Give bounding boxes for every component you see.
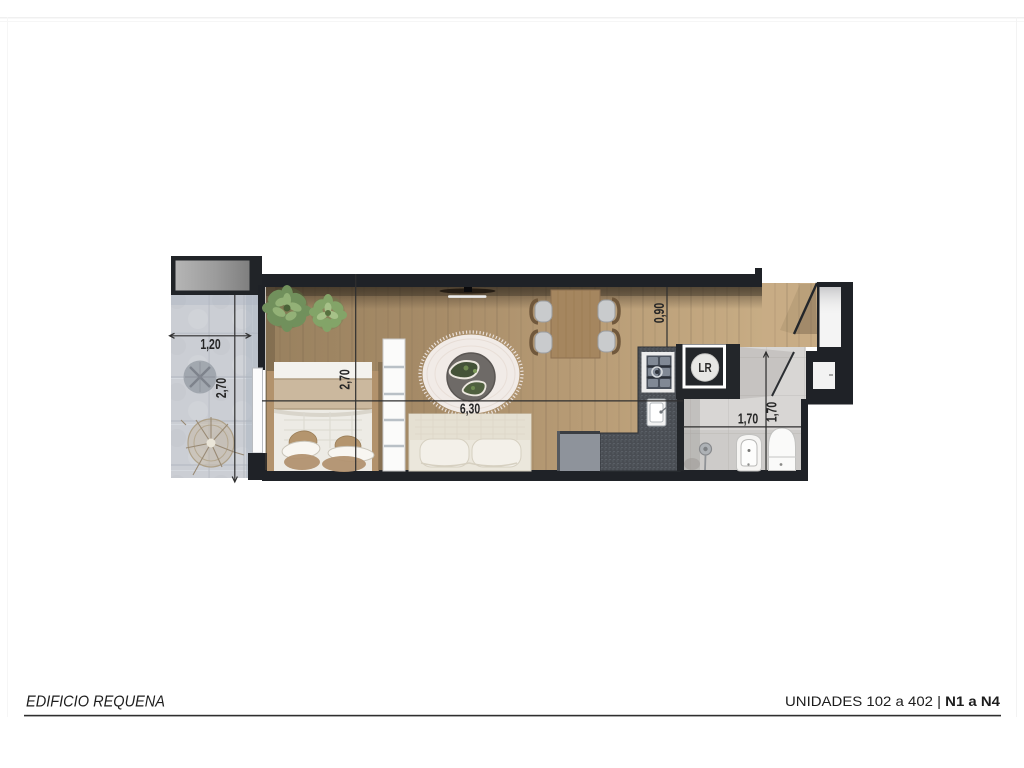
svg-text:EDIFICIO REQUENA: EDIFICIO REQUENA [26,694,165,711]
svg-text:2,70: 2,70 [213,378,229,398]
svg-text:1,70: 1,70 [738,411,758,427]
svg-text:1,20: 1,20 [200,336,220,352]
svg-text:1,70: 1,70 [764,402,780,422]
svg-text:UNIDADES 102 a 402 | N1 a N4: UNIDADES 102 a 402 | N1 a N4 [785,693,1000,709]
svg-text:2,70: 2,70 [337,369,353,389]
svg-text:0,90: 0,90 [651,303,667,323]
svg-text:6,30: 6,30 [460,401,480,417]
svg-text:LR: LR [698,362,711,375]
